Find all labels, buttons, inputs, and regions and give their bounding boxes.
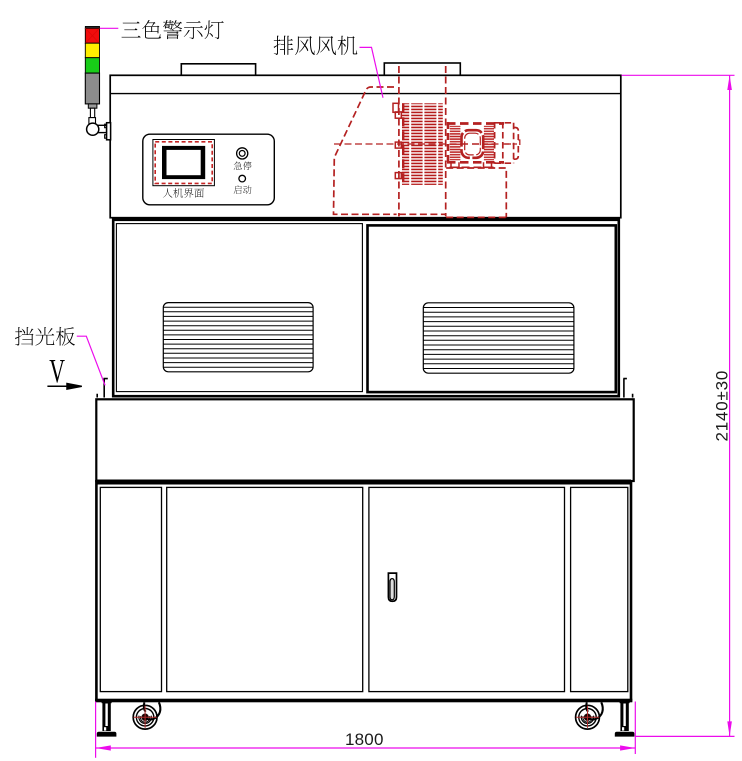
svg-text:V: V [49,353,65,390]
svg-text:1800: 1800 [345,730,384,749]
svg-text:2140±30: 2140±30 [713,370,732,442]
